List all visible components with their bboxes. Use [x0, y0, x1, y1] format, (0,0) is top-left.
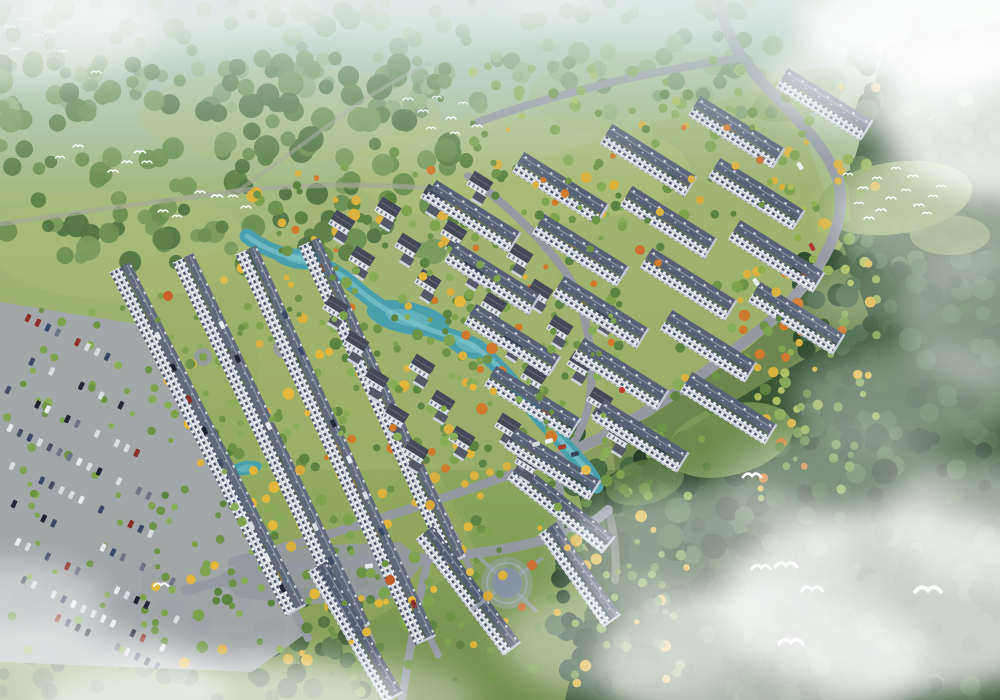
autumn-tree	[425, 500, 435, 510]
fog-cloud	[503, 584, 753, 700]
autumn-tree	[163, 291, 173, 301]
autumn-tree	[466, 568, 474, 576]
autumn-tree	[385, 575, 395, 585]
fog-cloud	[723, 430, 953, 534]
autumn-tree	[483, 591, 493, 601]
autumn-tree	[696, 196, 704, 204]
aerial-render-image	[0, 0, 1000, 700]
plaza-pond	[492, 568, 522, 598]
fog-cloud	[798, 274, 938, 326]
autumn-tree	[581, 465, 591, 475]
scene-svg	[0, 0, 1000, 700]
autumn-tree	[635, 245, 645, 255]
autumn-tree	[220, 276, 228, 284]
autumn-tree	[295, 465, 305, 475]
fog-cloud	[763, 34, 993, 130]
autumn-tree	[619, 387, 625, 393]
autumn-tree	[527, 560, 537, 570]
